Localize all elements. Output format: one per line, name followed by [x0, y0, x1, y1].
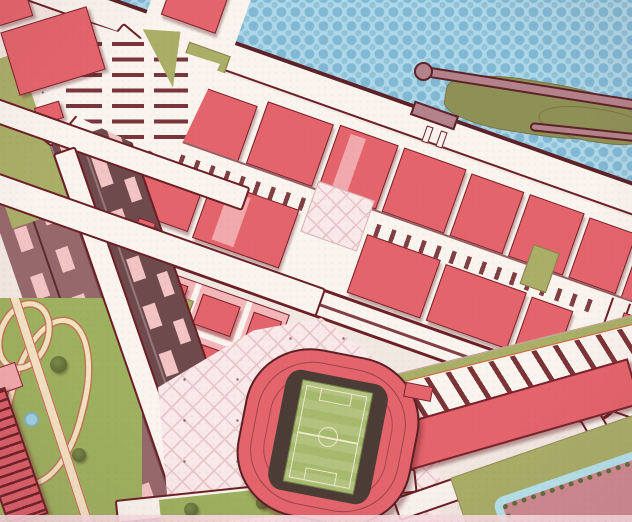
parking-gutter [144, 36, 154, 148]
map-bottom-edge [0, 515, 632, 522]
building-pale-section [331, 134, 365, 194]
breakwater-north-knob [414, 62, 433, 81]
city-map-canvas[interactable] [0, 0, 632, 522]
park-tree [72, 448, 86, 462]
park-pond [24, 412, 39, 427]
park-tree [50, 356, 67, 373]
